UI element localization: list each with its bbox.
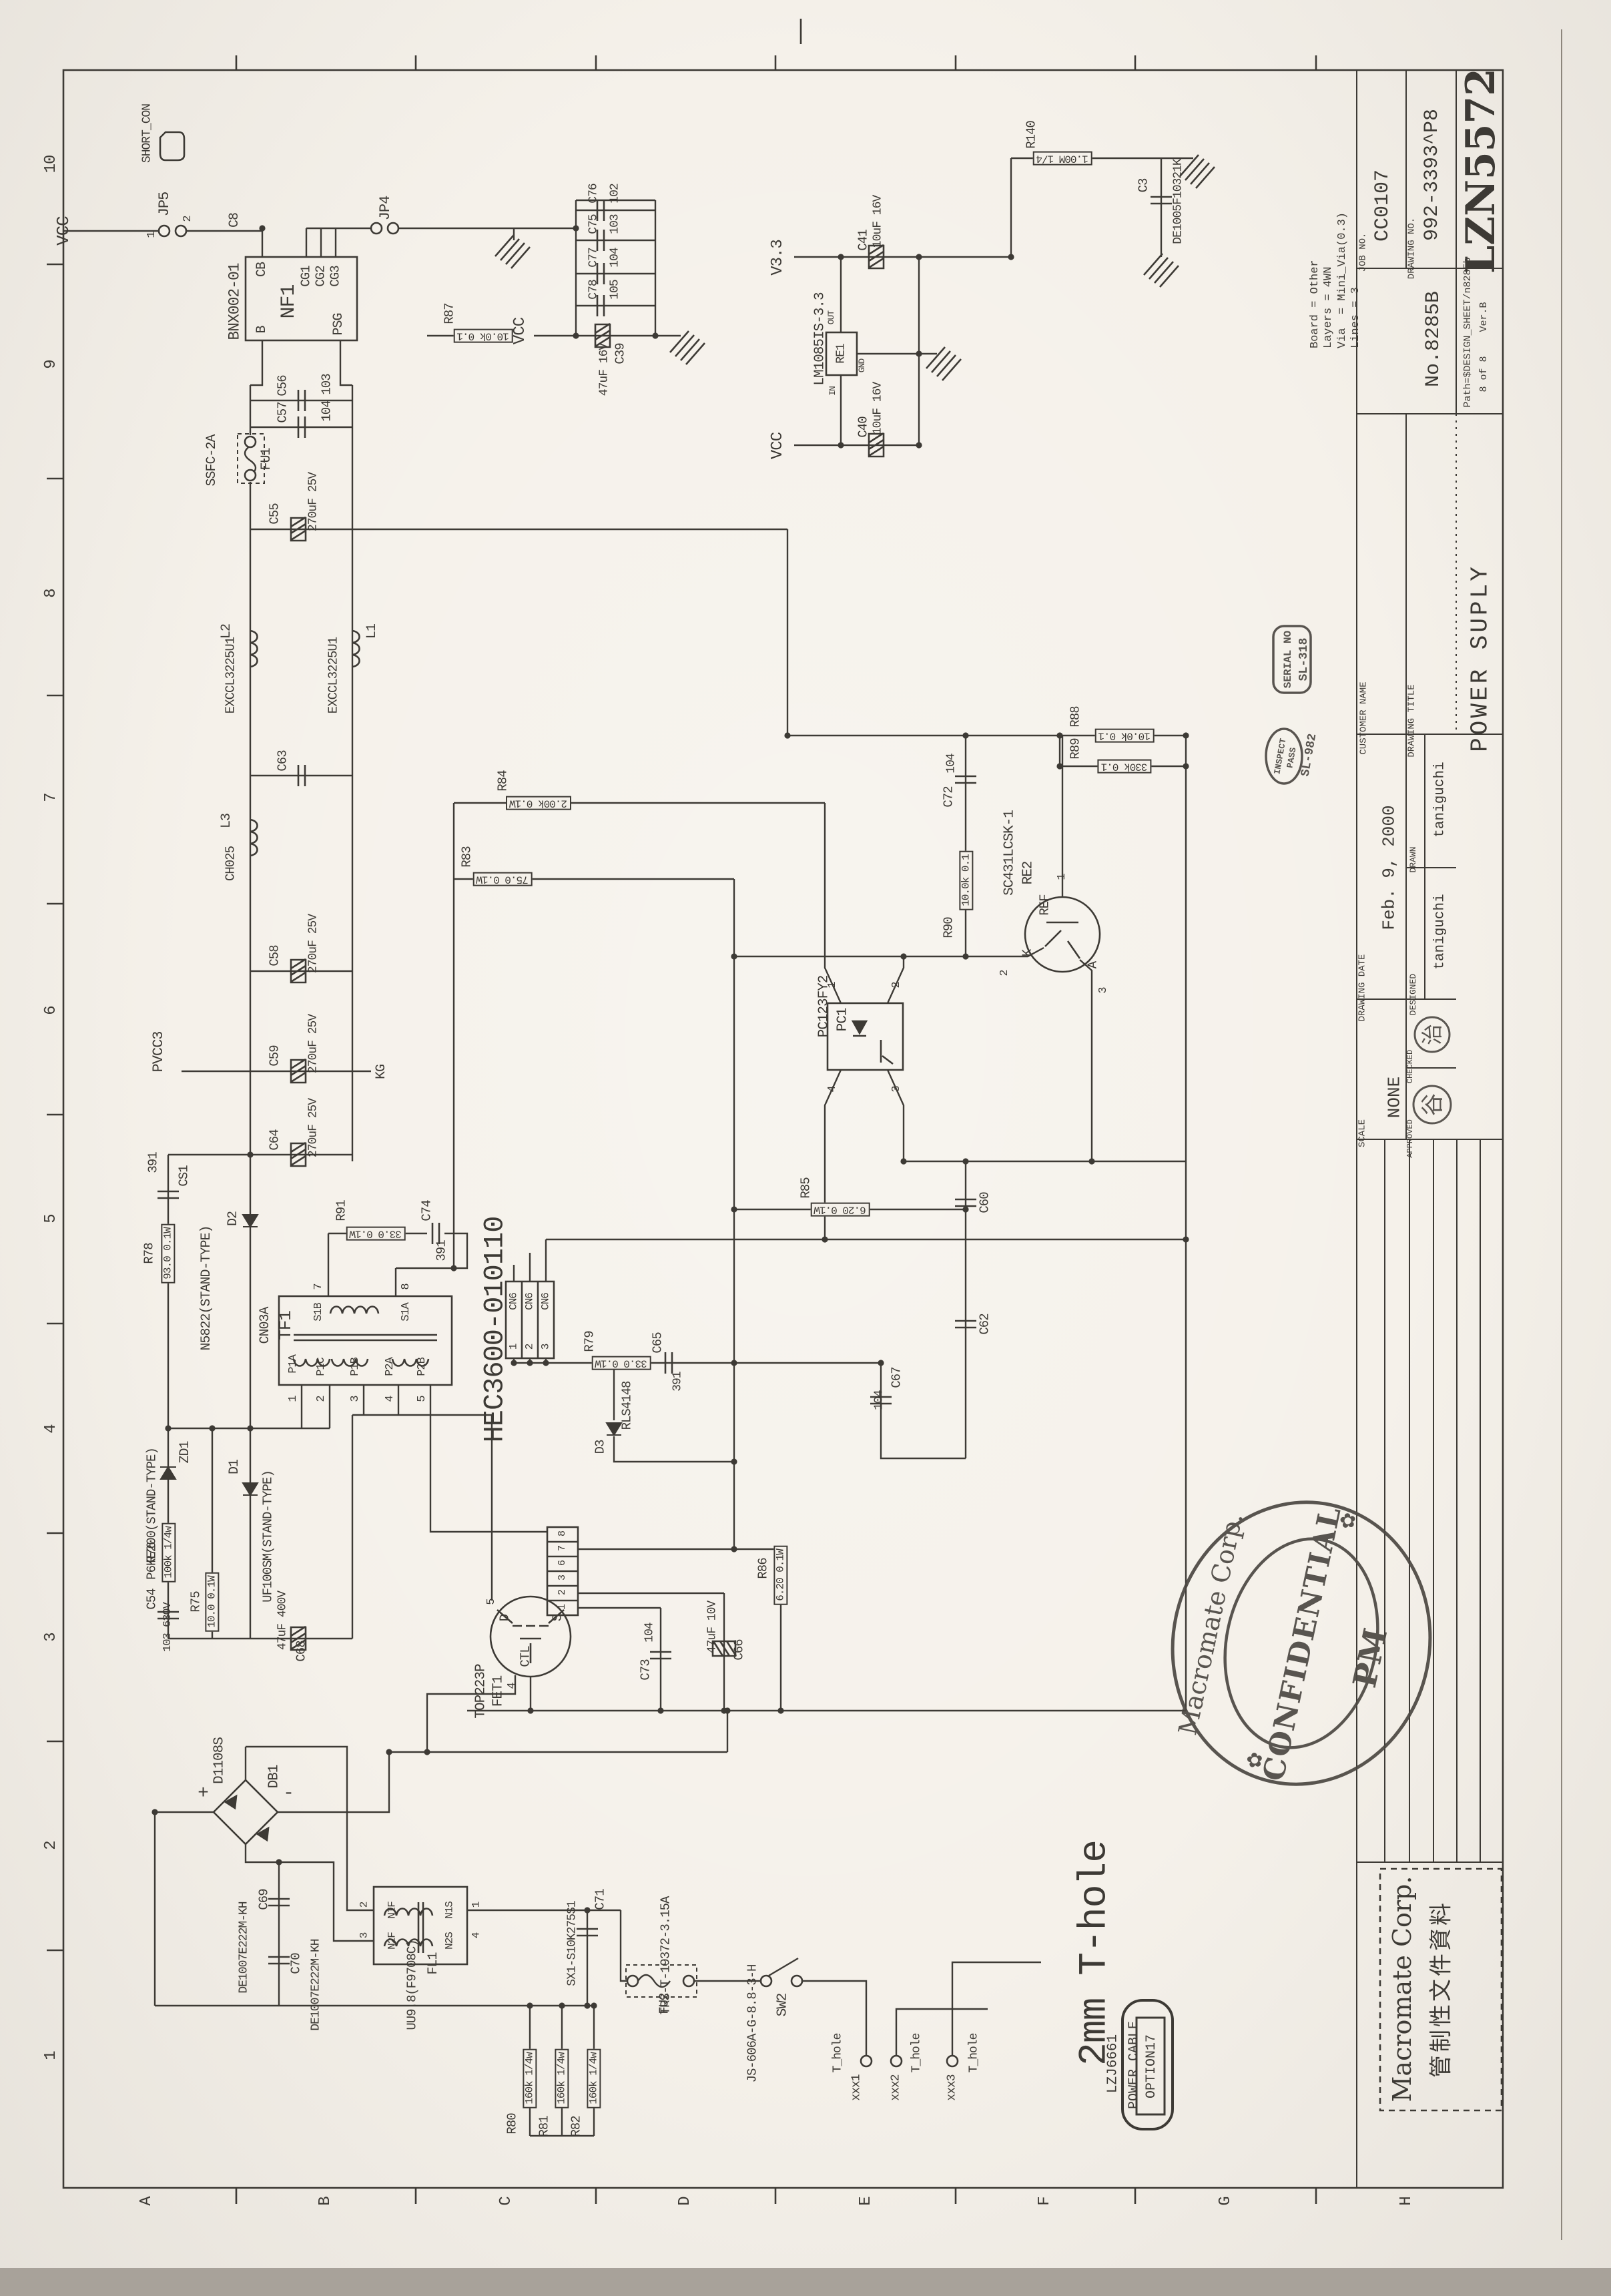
schematic-label: 270uF 25V bbox=[307, 914, 320, 973]
schematic-label: C3 bbox=[1137, 179, 1151, 193]
schematic-label: 2 bbox=[316, 1396, 328, 1402]
schematic-label: 4 bbox=[384, 1396, 396, 1402]
schematic-label: C69 bbox=[258, 1889, 272, 1910]
schematic-label: C8 bbox=[228, 213, 242, 228]
schematic-label: 6.20 0.1W bbox=[773, 1545, 787, 1605]
schematic-label: C58 bbox=[268, 945, 282, 966]
schematic-label: 3 bbox=[891, 1086, 903, 1092]
schematic-label: CB bbox=[255, 262, 270, 277]
schematic-label: C77 bbox=[587, 248, 600, 267]
schematic-label: A bbox=[138, 2197, 155, 2205]
corp-name-cn: 管制性文件資料 bbox=[1428, 1900, 1456, 2078]
schematic-label: REF bbox=[1038, 894, 1052, 915]
schematic-label: 33.0 0.1W bbox=[591, 1356, 651, 1370]
schematic-label: 1 bbox=[508, 1344, 519, 1350]
schematic-label: JS-606A-G-8.8-3-H bbox=[746, 1965, 760, 2083]
schematic-label: C40 bbox=[857, 416, 871, 437]
schematic-label: 3 bbox=[358, 1933, 370, 1939]
schematic-label: GND bbox=[858, 359, 867, 372]
schematic-label: 160k 1/4w bbox=[587, 2048, 601, 2108]
schematic-label: SSFC-2A bbox=[205, 435, 220, 486]
schematic-label: 7 bbox=[557, 1546, 568, 1551]
schematic-label: DE1007E222M-KH bbox=[238, 1902, 250, 1993]
drawing-date: Feb. 9, 2000 bbox=[1379, 805, 1399, 930]
schematic-label: C74 bbox=[420, 1200, 434, 1221]
schematic-label: 391 bbox=[435, 1240, 449, 1261]
schematic-label: C64 bbox=[268, 1129, 282, 1150]
schematic-label: C63 bbox=[276, 750, 290, 771]
schematic-label: HEC3600-010110 bbox=[480, 1217, 510, 1443]
schematic-label: 47uF 400V bbox=[276, 1591, 289, 1650]
schematic-label: R78 bbox=[143, 1243, 157, 1263]
schematic-label: CN6 bbox=[508, 1293, 519, 1310]
schematic-label: EXCCL3225U1 bbox=[224, 637, 238, 713]
schematic-label: 103 bbox=[320, 374, 334, 394]
schematic-label: CTL bbox=[519, 1646, 533, 1667]
schematic-label: 4 bbox=[43, 1424, 60, 1433]
designed-by: taniguchi bbox=[1431, 894, 1448, 969]
drawing-title: POWER SUPLY bbox=[1466, 564, 1494, 752]
drawing-date-label: DRAWING DATE bbox=[1357, 954, 1369, 1022]
schematic-label: C56 bbox=[276, 375, 290, 396]
schematic-label: VCC bbox=[512, 318, 529, 344]
schematic-label: 103 630V bbox=[162, 1603, 174, 1652]
board-notes: Board = Other Layers = 4WN Via = Mini_Vi… bbox=[1309, 212, 1363, 348]
schematic-label: CN6 bbox=[524, 1293, 535, 1310]
schematic-label: C66 bbox=[733, 1639, 747, 1660]
schematic-label: R91 bbox=[335, 1200, 349, 1221]
schematic-label: H bbox=[1398, 2197, 1415, 2205]
schematic-label: C41 bbox=[857, 230, 871, 250]
schematic-label: C71 bbox=[594, 1889, 608, 1910]
schematic-label: 8 bbox=[557, 1531, 568, 1536]
schematic-label: CG3 bbox=[329, 266, 343, 286]
schematic-label: 10uF 16V bbox=[872, 382, 884, 435]
schematic-label: 2 bbox=[891, 982, 903, 988]
schematic-label: 10.0k 0.1 bbox=[1094, 728, 1154, 742]
drawing-no-label: DRAWING NO. bbox=[1407, 218, 1418, 279]
schematic-label: CH025 bbox=[224, 846, 238, 881]
schematic-label: 75.0 0.1W bbox=[472, 872, 532, 886]
job-no-label: JOB NO. bbox=[1358, 233, 1369, 272]
schematic-label: 10uF 16V bbox=[872, 196, 884, 248]
schematic-label: F bbox=[1036, 2197, 1054, 2205]
schematic-label: FU2 bbox=[658, 1993, 672, 2014]
schematic-label: SHORT_CON bbox=[141, 104, 153, 163]
schematic-label: VCC bbox=[54, 216, 73, 246]
schematic-label: 1 bbox=[557, 1605, 568, 1610]
schematic-label: SC431LCSK-1 bbox=[1003, 810, 1018, 896]
schematic-label: FL1 bbox=[426, 1952, 441, 1974]
schematic-label: 1.00M 1/4 bbox=[1032, 151, 1092, 165]
schematic-label: CG1 bbox=[300, 266, 314, 286]
scale-label: SCALE bbox=[1357, 1119, 1369, 1147]
schematic-label: L3 bbox=[220, 814, 234, 828]
schematic-label: T_hole bbox=[910, 2034, 923, 2073]
drawn-label: DRAWN bbox=[1408, 846, 1419, 872]
schematic-label: R82 bbox=[570, 2116, 584, 2136]
schematic-label: 103 bbox=[609, 214, 621, 234]
schematic-label: P1A bbox=[288, 1355, 300, 1374]
job-no-value: CC0107 bbox=[1371, 170, 1395, 242]
schematic-label: R89 bbox=[1069, 738, 1083, 759]
schematic-label: C72 bbox=[942, 786, 956, 807]
schematic-label: N5822(STAND-TYPE) bbox=[200, 1225, 214, 1350]
schematic-label: P1B bbox=[350, 1358, 362, 1376]
schematic-label: OUT bbox=[827, 311, 836, 324]
schematic-label: C73 bbox=[639, 1659, 653, 1680]
schematic-label: C39 bbox=[614, 343, 628, 364]
schematic-label: 104 bbox=[873, 1390, 886, 1410]
schematic-label: 104 bbox=[643, 1623, 656, 1642]
schematic-label: DE1005F10321K bbox=[1172, 159, 1185, 244]
schematic-label: A bbox=[1086, 962, 1100, 968]
drawing-no-value: 992-3393^P8 bbox=[1420, 109, 1444, 241]
schematic-label: EXCCL3225U1 bbox=[327, 637, 341, 713]
schematic-label: S1B bbox=[313, 1303, 325, 1322]
schematic-label: xxx3 bbox=[946, 2074, 958, 2100]
schematic-label: 160k 1/4w bbox=[523, 2048, 537, 2108]
sheet-number: No.8285B bbox=[1421, 291, 1445, 387]
schematic-label: PVCC3 bbox=[151, 1031, 167, 1072]
schematic-label: R87 bbox=[443, 303, 457, 324]
schematic-label: 2 bbox=[999, 970, 1011, 976]
schematic-label: 270uF 25V bbox=[307, 473, 320, 531]
schematic-label: C60 bbox=[978, 1192, 992, 1213]
schematic-label: G bbox=[1217, 2197, 1235, 2205]
schematic-label: PSG bbox=[332, 313, 346, 335]
schematic-label: R79 bbox=[583, 1331, 597, 1352]
schematic-label: xxx1 bbox=[850, 2074, 863, 2100]
schematic-label: KG bbox=[374, 1065, 389, 1079]
schematic-label: R81 bbox=[538, 2116, 552, 2136]
schematic-label: D bbox=[499, 1615, 513, 1621]
schematic-label: R86 bbox=[757, 1558, 771, 1579]
schematic-label: + bbox=[198, 1784, 208, 1804]
schematic-label: R90 bbox=[942, 917, 956, 938]
schematic-label: 270uF 25V bbox=[307, 1015, 320, 1073]
schematic-label: C67 bbox=[890, 1367, 904, 1388]
schematic-label: 47uF 16V bbox=[598, 344, 611, 396]
schematic-label: 4 bbox=[470, 1933, 482, 1939]
scanned-schematic-page: CONFIDENTIAL Macromate Corp. PM ✿ ✿ SERI… bbox=[0, 0, 1611, 2296]
schematic-label: RE2 bbox=[1022, 862, 1037, 885]
schematic-label: NIF bbox=[386, 1902, 398, 1919]
schematic-label: 104 bbox=[609, 248, 621, 267]
schematic-label: C70 bbox=[290, 1953, 304, 1974]
schematic-label: 3 bbox=[1098, 987, 1110, 993]
schematic-label: R83 bbox=[460, 846, 474, 867]
schematic-label: TOP223P bbox=[474, 1664, 490, 1718]
schematic-label: PC1 bbox=[836, 1009, 852, 1032]
schematic-label: 100k 1/4w bbox=[162, 1522, 176, 1582]
schematic-label: JP5 bbox=[157, 192, 173, 217]
schematic-label: 1 bbox=[827, 982, 839, 988]
schematic-label: 2.00k 0.1W bbox=[506, 796, 571, 810]
schematic-label: R75 bbox=[190, 1591, 204, 1612]
schematic-label: VCC bbox=[769, 433, 787, 459]
schematic-label: C68 bbox=[295, 1641, 309, 1661]
schematic-label: TF1 bbox=[276, 1311, 295, 1340]
schematic-label: C57 bbox=[276, 402, 290, 422]
schematic-label: 3 bbox=[350, 1396, 362, 1402]
schematic-label: RE1 bbox=[835, 344, 848, 363]
option-stamp-id: LZJ6661 bbox=[1104, 2034, 1121, 2093]
schematic-label: C54 bbox=[145, 1589, 159, 1609]
schematic-label: FET1 bbox=[492, 1676, 507, 1707]
schematic-label: 10.0 0.1W bbox=[205, 1572, 219, 1631]
schematic-label: D1108S bbox=[213, 1737, 228, 1784]
schematic-label: CG2 bbox=[314, 266, 328, 286]
schematic-label: 330k 0.1 bbox=[1098, 759, 1152, 773]
schematic-label: UU9.8(F9708C) bbox=[406, 1940, 420, 2030]
schematic-label: 2 bbox=[182, 216, 194, 222]
corp-name: Macromate Corp. bbox=[1387, 1876, 1418, 2102]
schematic-label: 8 bbox=[43, 589, 60, 597]
schematic-label: - bbox=[283, 1784, 294, 1804]
schematic-label: 391 bbox=[147, 1152, 161, 1173]
schematic-label: DB1 bbox=[268, 1765, 283, 1789]
schematic-label: IN bbox=[828, 386, 838, 396]
schematic-label: 5 bbox=[486, 1599, 498, 1605]
schematic-label: R80 bbox=[506, 2113, 520, 2134]
schematic-label: S1A bbox=[400, 1303, 412, 1322]
schematic-label: C59 bbox=[268, 1045, 282, 1066]
schematic-label: 104 bbox=[945, 754, 958, 773]
schematic-label: C76 bbox=[587, 184, 600, 203]
schematic-label: B bbox=[255, 326, 270, 333]
schematic-label: 1 bbox=[1056, 874, 1068, 880]
schematic-label: xxx2 bbox=[890, 2074, 902, 2100]
schematic-label: CS1 bbox=[178, 1165, 192, 1186]
schematic-label: CN6 bbox=[540, 1293, 551, 1310]
schematic-label: S bbox=[551, 1615, 565, 1621]
schematic-label: 105 bbox=[609, 280, 621, 299]
schematic-label: C bbox=[498, 2197, 515, 2205]
schematic-label: 33.0 0.1W bbox=[346, 1226, 405, 1240]
schematic-label: 102 bbox=[609, 184, 621, 203]
approved-label: APPROVED bbox=[1405, 1119, 1415, 1158]
schematic-label: N2S bbox=[444, 1932, 455, 1950]
schematic-label: C55 bbox=[268, 503, 282, 524]
schematic-label: N1S bbox=[444, 1902, 455, 1919]
schematic-label: 6.20 0.1W bbox=[810, 1202, 870, 1216]
schematic-label: C78 bbox=[587, 280, 600, 299]
schematic-label: ZD1 bbox=[178, 1441, 193, 1463]
schematic-label: R76 bbox=[145, 1542, 159, 1562]
schematic-label: 6 bbox=[43, 1006, 60, 1015]
schematic-label: 1 bbox=[470, 1902, 482, 1908]
schematic-label: 104 bbox=[320, 400, 334, 421]
schematic-label: 7 bbox=[313, 1283, 325, 1289]
schematic-label: 2 bbox=[557, 1590, 568, 1595]
schematic-label: SX1-S10K275S1 bbox=[566, 1901, 579, 1986]
schematic-label: R88 bbox=[1069, 706, 1083, 727]
schematic-label: 270uF 25V bbox=[307, 1099, 320, 1157]
model-number: LZN5572 bbox=[1457, 68, 1505, 274]
schematic-label: 1 bbox=[288, 1396, 300, 1402]
schematic-label: 2 bbox=[358, 1902, 370, 1908]
schematic-label: CN03A bbox=[258, 1307, 273, 1344]
schematic-label: 4 bbox=[827, 1086, 839, 1092]
option-stamp-line1: POWER CABLE bbox=[1126, 2021, 1143, 2109]
option-stamp-line2: OPTION17 bbox=[1144, 2034, 1160, 2098]
schematic-labels-layer: 10987654321ABCDEFGHVCCJP512SHORT_CONC8BN… bbox=[0, 0, 1611, 2296]
schematic-label: 10.0k 0.1 bbox=[453, 328, 513, 342]
schematic-label: 10 bbox=[43, 156, 60, 174]
schematic-label: BNX002-01 bbox=[227, 263, 244, 340]
schematic-label: 8 bbox=[400, 1283, 412, 1289]
schematic-label: T_hole bbox=[968, 2034, 980, 2073]
designed-label: DESIGNED bbox=[1408, 974, 1419, 1015]
drawn-by: taniguchi bbox=[1431, 762, 1448, 837]
schematic-label: 6 bbox=[557, 1560, 568, 1566]
schematic-label: R85 bbox=[799, 1177, 814, 1198]
schematic-label: 47uF 10V bbox=[706, 1601, 719, 1653]
schematic-label: P2B bbox=[416, 1358, 428, 1376]
schematic-label: NF1 bbox=[278, 284, 300, 318]
schematic-label: R84 bbox=[497, 770, 511, 791]
schematic-label: L2 bbox=[220, 624, 234, 639]
design-sheet-path: Path=$DESIGN_SHEET/n8285b bbox=[1462, 257, 1474, 407]
schematic-label: C65 bbox=[651, 1332, 665, 1353]
schematic-label: E bbox=[858, 2197, 875, 2205]
schematic-label: UF100SM(STAND-TYPE) bbox=[262, 1470, 276, 1603]
schematic-label: P1C bbox=[316, 1358, 328, 1376]
schematic-label: 3 bbox=[43, 1633, 60, 1641]
schematic-label: 2 bbox=[524, 1344, 535, 1350]
schematic-label: 2 bbox=[43, 1841, 60, 1849]
schematic-label: R140 bbox=[1025, 121, 1039, 149]
schematic-label: L1 bbox=[365, 624, 380, 639]
schematic-label: D1 bbox=[228, 1460, 242, 1474]
schematic-label: 1 bbox=[43, 2051, 60, 2060]
schematic-label: 10.0k 0.1 bbox=[959, 850, 973, 910]
schematic-label: 3 bbox=[557, 1575, 568, 1581]
schematic-label: C75 bbox=[587, 214, 600, 234]
page-version: 8 of 8 Ver.B bbox=[1478, 302, 1490, 392]
schematic-label: D2 bbox=[226, 1211, 241, 1226]
schematic-label: K bbox=[1021, 950, 1035, 956]
schematic-label: 5 bbox=[43, 1214, 60, 1223]
schematic-label: C62 bbox=[978, 1314, 992, 1334]
checked-label: CHECKED bbox=[1405, 1050, 1415, 1083]
schematic-label: T_hole bbox=[832, 2034, 844, 2073]
schematic-label: 5 bbox=[416, 1396, 428, 1402]
schematic-label: 9 bbox=[43, 360, 60, 368]
schematic-label: DE1007E222M-KH bbox=[310, 1939, 322, 2030]
schematic-label: 391 bbox=[671, 1372, 684, 1391]
schematic-label: JP4 bbox=[378, 196, 394, 221]
scale-value: NONE bbox=[1384, 1077, 1405, 1118]
schematic-label: 93.0 0.1W bbox=[161, 1223, 175, 1283]
schematic-label: B bbox=[317, 2197, 334, 2205]
schematic-label: 7 bbox=[43, 793, 60, 802]
schematic-label: D3 bbox=[594, 1440, 608, 1454]
schematic-label: 4 bbox=[507, 1683, 519, 1689]
schematic-label: FU1 bbox=[260, 448, 274, 470]
schematic-label: LM1085IS-3.3 bbox=[814, 292, 829, 385]
schematic-label: N2F bbox=[386, 1932, 398, 1950]
schematic-label: 1 bbox=[146, 232, 158, 238]
schematic-label: SW2 bbox=[776, 1994, 791, 2017]
schematic-label: D bbox=[677, 2197, 694, 2205]
schematic-label: 2mm T-hole bbox=[1075, 1840, 1117, 2066]
customer-name-label: CUSTOMER NAME bbox=[1359, 681, 1370, 754]
drawing-title-label: DRAWING TITLE bbox=[1407, 684, 1418, 757]
schematic-label: P2A bbox=[384, 1358, 396, 1376]
schematic-label: 160k 1/4w bbox=[555, 2048, 569, 2108]
schematic-label: 3 bbox=[540, 1344, 551, 1350]
schematic-label: V3.3 bbox=[769, 240, 787, 276]
schematic-label: RLS4148 bbox=[621, 1382, 635, 1430]
